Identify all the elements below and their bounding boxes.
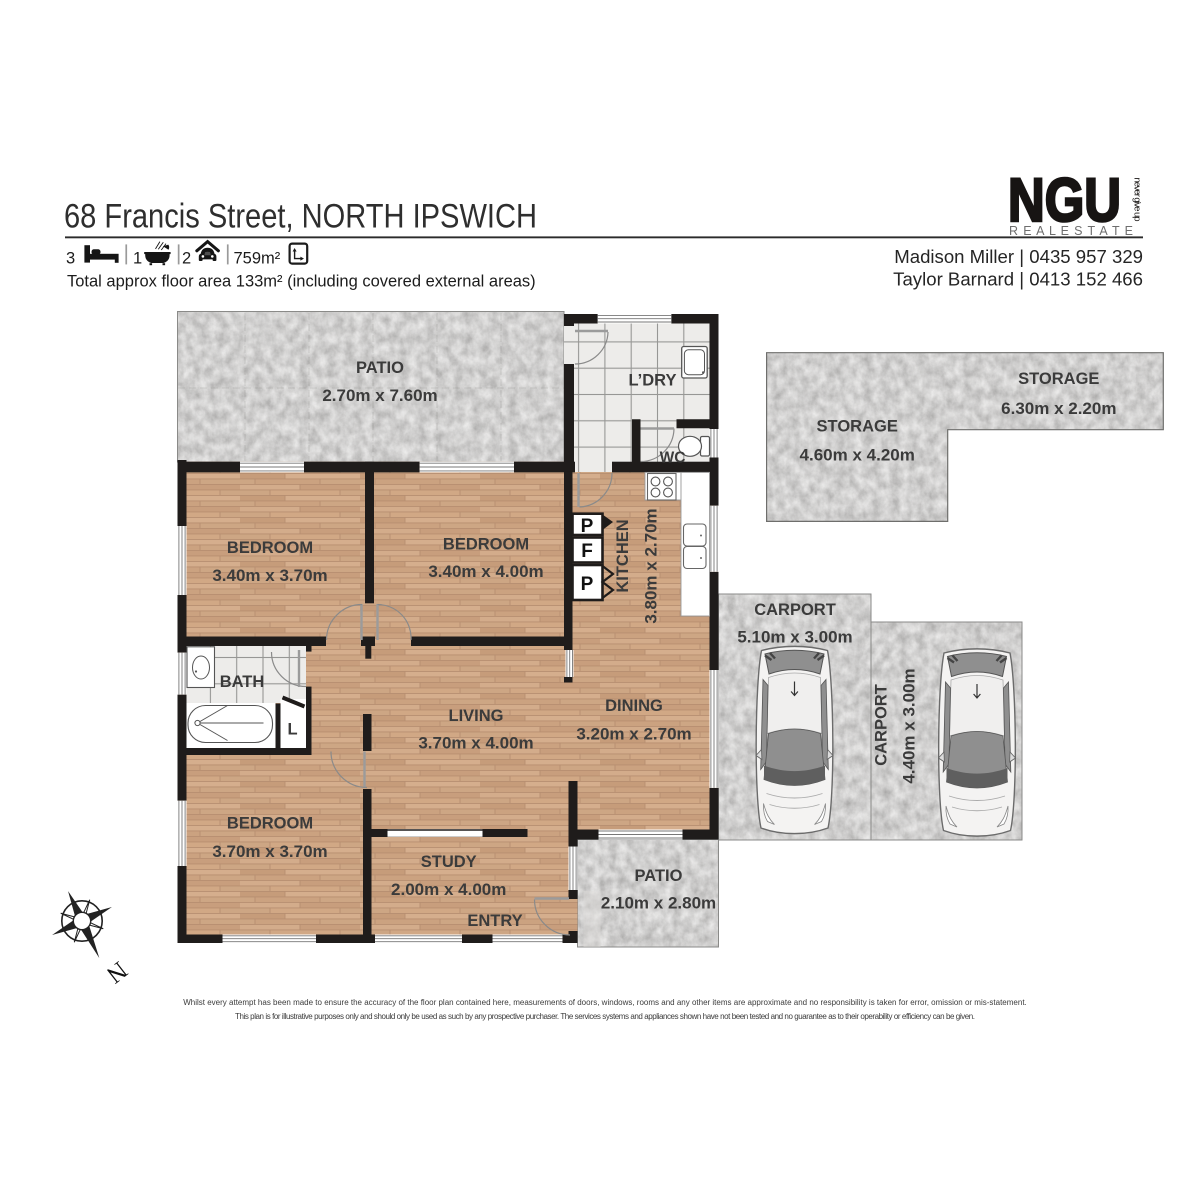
svg-text:3: 3 <box>66 250 75 268</box>
svg-text:WC: WC <box>660 450 686 467</box>
svg-text:Taylor Barnard | 0413 152 466: Taylor Barnard | 0413 152 466 <box>893 269 1143 290</box>
svg-text:759m²: 759m² <box>234 250 281 268</box>
svg-text:R E A L E S T A T E: R E A L E S T A T E <box>1009 224 1133 238</box>
svg-text:4.40m x 3.00m: 4.40m x 3.00m <box>900 668 919 783</box>
svg-text:F: F <box>581 541 593 562</box>
svg-text:1: 1 <box>133 250 142 268</box>
svg-text:KITCHEN: KITCHEN <box>614 519 632 592</box>
svg-text:68 Francis Street, NORTH IPSWI: 68 Francis Street, NORTH IPSWICH <box>64 198 537 236</box>
svg-text:P: P <box>581 516 594 537</box>
svg-text:3.40m x 3.70m: 3.40m x 3.70m <box>212 566 327 585</box>
svg-text:CARPORT: CARPORT <box>754 601 836 619</box>
svg-text:PATIO: PATIO <box>356 359 404 377</box>
svg-text:3.80m x 2.70m: 3.80m x 2.70m <box>642 508 661 623</box>
svg-text:4.60m x 4.20m: 4.60m x 4.20m <box>800 446 915 465</box>
svg-text:2.00m x 4.00m: 2.00m x 4.00m <box>391 880 506 899</box>
svg-text:STORAGE: STORAGE <box>817 417 898 435</box>
svg-text:2.10m x 2.80m: 2.10m x 2.80m <box>601 894 716 913</box>
svg-text:Total approx floor area 133m²: Total approx floor area 133m² (including… <box>67 273 536 291</box>
svg-text:DINING: DINING <box>605 697 663 715</box>
svg-text:3.70m x 4.00m: 3.70m x 4.00m <box>418 734 533 753</box>
svg-text:ENTRY: ENTRY <box>467 912 522 930</box>
svg-text:CARPORT: CARPORT <box>873 684 891 766</box>
svg-text:Whilst every attempt has been: Whilst every attempt has been made to en… <box>183 998 1027 1007</box>
svg-text:L: L <box>287 721 297 739</box>
svg-text:Madison Miller | 0435 957 329: Madison Miller | 0435 957 329 <box>894 246 1143 267</box>
svg-text:2.70m x 7.60m: 2.70m x 7.60m <box>322 386 437 405</box>
svg-text:BEDROOM: BEDROOM <box>443 536 529 554</box>
svg-text:2: 2 <box>182 250 191 268</box>
svg-text:STORAGE: STORAGE <box>1018 370 1099 388</box>
svg-text:PATIO: PATIO <box>635 867 683 885</box>
svg-text:BEDROOM: BEDROOM <box>227 815 313 833</box>
svg-text:This plan is for illustrative: This plan is for illustrative purposes o… <box>235 1012 975 1021</box>
svg-text:5.10m x 3.00m: 5.10m x 3.00m <box>737 628 852 647</box>
svg-text:6.30m x 2.20m: 6.30m x 2.20m <box>1001 399 1116 418</box>
svg-text:BATH: BATH <box>220 673 265 691</box>
svg-text:3.70m x 3.70m: 3.70m x 3.70m <box>212 842 327 861</box>
svg-text:L’DRY: L’DRY <box>629 372 677 390</box>
svg-text:BEDROOM: BEDROOM <box>227 539 313 557</box>
svg-text:3.40m x 4.00m: 3.40m x 4.00m <box>428 562 543 581</box>
svg-text:never give up: never give up <box>1132 178 1143 222</box>
svg-text:LIVING: LIVING <box>448 707 503 725</box>
svg-text:3.20m x 2.70m: 3.20m x 2.70m <box>576 725 691 744</box>
svg-text:STUDY: STUDY <box>421 853 477 871</box>
svg-text:P: P <box>581 574 594 595</box>
